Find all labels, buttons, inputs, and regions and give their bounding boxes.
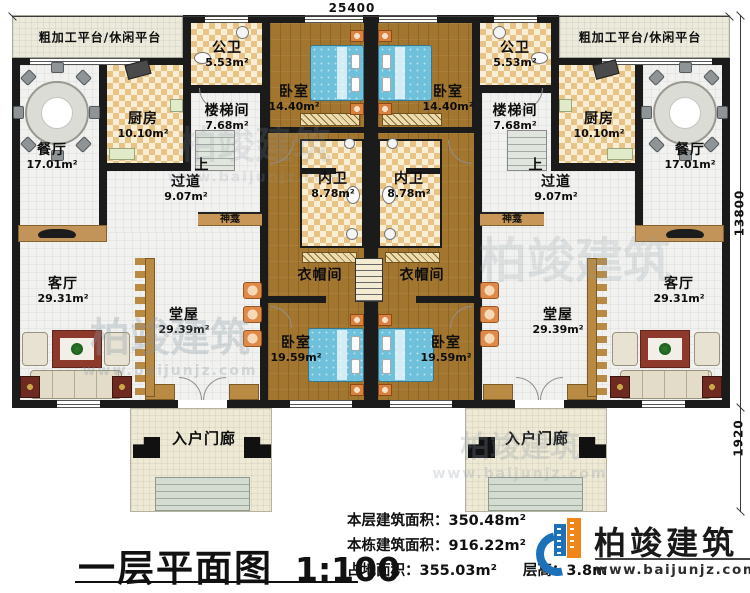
window-bottom-bedroom-left [290, 400, 352, 408]
door-opening-right [515, 400, 564, 408]
stool-icon [480, 282, 499, 299]
side-table-icon [610, 376, 630, 398]
wall-panel [229, 384, 259, 400]
side-table-icon [702, 376, 722, 398]
drawing-title-text: 一层平面图 [78, 538, 273, 592]
screen-partition [145, 258, 155, 397]
room-label-corridor-left: 过道9.07m² [164, 175, 207, 203]
shrine-niche-right: 神龛 [480, 212, 544, 226]
room-label-corridor-right: 过道9.07m² [534, 175, 577, 203]
room-label-dining-right: 餐厅17.01m² [664, 143, 715, 171]
chair-icon [679, 62, 692, 73]
side-table-icon [20, 376, 40, 398]
logo-building-windows [570, 522, 574, 552]
bed-pillow [382, 359, 391, 374]
room-label-cloakroom-left: 衣帽间 [298, 269, 343, 284]
room-label-dining-left: 餐厅17.01m² [26, 143, 77, 171]
bed-sheet [337, 330, 347, 380]
dimension-porch-depth: 1920 [732, 419, 746, 456]
stool-icon [243, 282, 262, 299]
window-platform-left [30, 58, 140, 65]
bed-pillow [382, 336, 391, 351]
nightstand-icon [350, 30, 364, 42]
tv-icon [666, 229, 704, 238]
bed-sheet [337, 47, 347, 99]
bed-pillow [351, 359, 360, 374]
sofa-icon [30, 370, 122, 399]
side-table-icon [112, 376, 132, 398]
room-label-kitchen-right: 厨房10.10m² [573, 112, 624, 140]
kitchen-cabinet-icon [109, 148, 135, 160]
room-label-porch-left: 入户门廊 [172, 432, 236, 447]
shrine-niche-left: 神龛 [198, 212, 262, 226]
chair-icon [717, 106, 728, 119]
nightstand-icon [378, 30, 392, 42]
attic-ladder-icon [355, 258, 383, 302]
room-label-hall-right: 堂屋29.39m² [532, 308, 583, 336]
room-label-public-bath-left: 公卫5.53m² [205, 41, 248, 69]
dimension-height: 13800 [732, 190, 746, 237]
company-logo: 柏竣建筑 www.baijunjz.com [534, 516, 746, 586]
stool-icon [243, 306, 262, 323]
floor-plan-canvas: 神龛 神龛 [0, 0, 750, 593]
nightstand-icon [350, 314, 364, 326]
coffee-table-icon [640, 330, 690, 368]
chair-icon [13, 106, 24, 119]
chair-icon [641, 106, 652, 119]
room-label-platform-left: 粗加工平台/休闲平台 [39, 29, 161, 46]
washbasin-icon [236, 26, 249, 39]
chair-icon [89, 106, 100, 119]
sofa-icon [620, 370, 712, 399]
stool-icon [243, 330, 262, 347]
dining-table-top [41, 97, 73, 129]
room-label-bedroom-top-right: 卧室14.40m² [422, 85, 473, 113]
wall-cloak-bedroom-left [268, 296, 326, 303]
wall-panel [483, 384, 513, 400]
wardrobe-icon [385, 252, 440, 263]
stair-up-label-left: 上 [195, 159, 210, 174]
screen-partition [587, 258, 597, 397]
room-label-living-left: 客厅29.31m² [37, 277, 88, 305]
plant-icon [659, 343, 671, 355]
door-opening-left [178, 400, 227, 408]
bed-pillow [351, 54, 360, 69]
window-bottom-living-right [642, 400, 685, 408]
dining-table-top [669, 97, 701, 129]
coffee-table-icon [52, 330, 102, 368]
bed-sheet [395, 47, 405, 99]
window-bottom-living-left [57, 400, 100, 408]
room-label-bedroom-bottom-right: 卧室19.59m² [420, 336, 471, 364]
armchair-icon [22, 332, 48, 366]
stool-icon [480, 306, 499, 323]
nightstand-icon [378, 314, 392, 326]
window-platform-right [602, 58, 712, 65]
kitchen-cabinet-icon [607, 148, 633, 160]
kitchen-sink-icon [170, 99, 183, 112]
shower-icon [344, 138, 355, 149]
armchair-icon [104, 332, 130, 366]
wall-cloak-bedroom-right [416, 296, 474, 303]
dimension-line-top [12, 16, 730, 17]
logo-building-icon [554, 524, 566, 556]
screen-partition-teeth [135, 258, 145, 397]
armchair-icon [612, 332, 638, 366]
washbasin-icon [346, 228, 358, 240]
room-label-bedroom-top-left: 卧室14.40m² [268, 85, 319, 113]
washbasin-icon [384, 228, 396, 240]
porch-steps-right [488, 477, 583, 511]
bed-pillow [351, 336, 360, 351]
room-label-bedroom-bottom-left: 卧室19.59m² [270, 336, 321, 364]
armchair-icon [694, 332, 720, 366]
kitchen-sink-icon [559, 99, 572, 112]
room-label-hall-left: 堂屋29.39m² [158, 308, 209, 336]
bed-sheet [395, 330, 405, 380]
dining-table-icon [25, 81, 89, 145]
room-label-porch-right: 入户门廊 [505, 432, 569, 447]
bed-pillow [382, 77, 391, 92]
washbasin-icon [493, 26, 506, 39]
window-bottom-bedroom-right [390, 400, 452, 408]
screen-partition-teeth [597, 258, 607, 397]
shrine-label: 神龛 [220, 214, 240, 225]
bed-pillow [382, 54, 391, 69]
room-label-cloakroom-right: 衣帽间 [400, 269, 445, 284]
shrine-label: 神龛 [502, 214, 522, 225]
nightstand-icon [350, 103, 364, 115]
nightstand-icon [350, 384, 364, 396]
dining-table-icon [653, 81, 717, 145]
tv-icon [38, 229, 76, 238]
room-label-stairwell-right: 楼梯间7.68m² [493, 104, 538, 132]
stool-icon [480, 330, 499, 347]
title-underline [75, 581, 358, 583]
nightstand-icon [378, 103, 392, 115]
dimension-width: 25400 [329, 1, 376, 15]
logo-url-text: www.baijunjz.com [595, 558, 750, 578]
bed-pillow [351, 77, 360, 92]
porch-steps-left [155, 477, 250, 511]
room-label-platform-right: 粗加工平台/休闲平台 [579, 29, 701, 46]
shower-icon [387, 138, 398, 149]
plant-icon [71, 343, 83, 355]
room-label-public-bath-right: 公卫5.53m² [493, 41, 536, 69]
room-label-kitchen-left: 厨房10.10m² [117, 112, 168, 140]
room-label-living-right: 客厅29.31m² [653, 277, 704, 305]
room-label-stairwell-left: 楼梯间7.68m² [205, 104, 250, 132]
room-label-inner-bath-right: 内卫8.78m² [387, 172, 430, 200]
stair-up-label-right: 上 [529, 159, 544, 174]
nightstand-icon [378, 384, 392, 396]
wardrobe-icon [302, 252, 357, 263]
chair-icon [51, 62, 64, 73]
room-label-inner-bath-left: 内卫8.78m² [311, 172, 354, 200]
